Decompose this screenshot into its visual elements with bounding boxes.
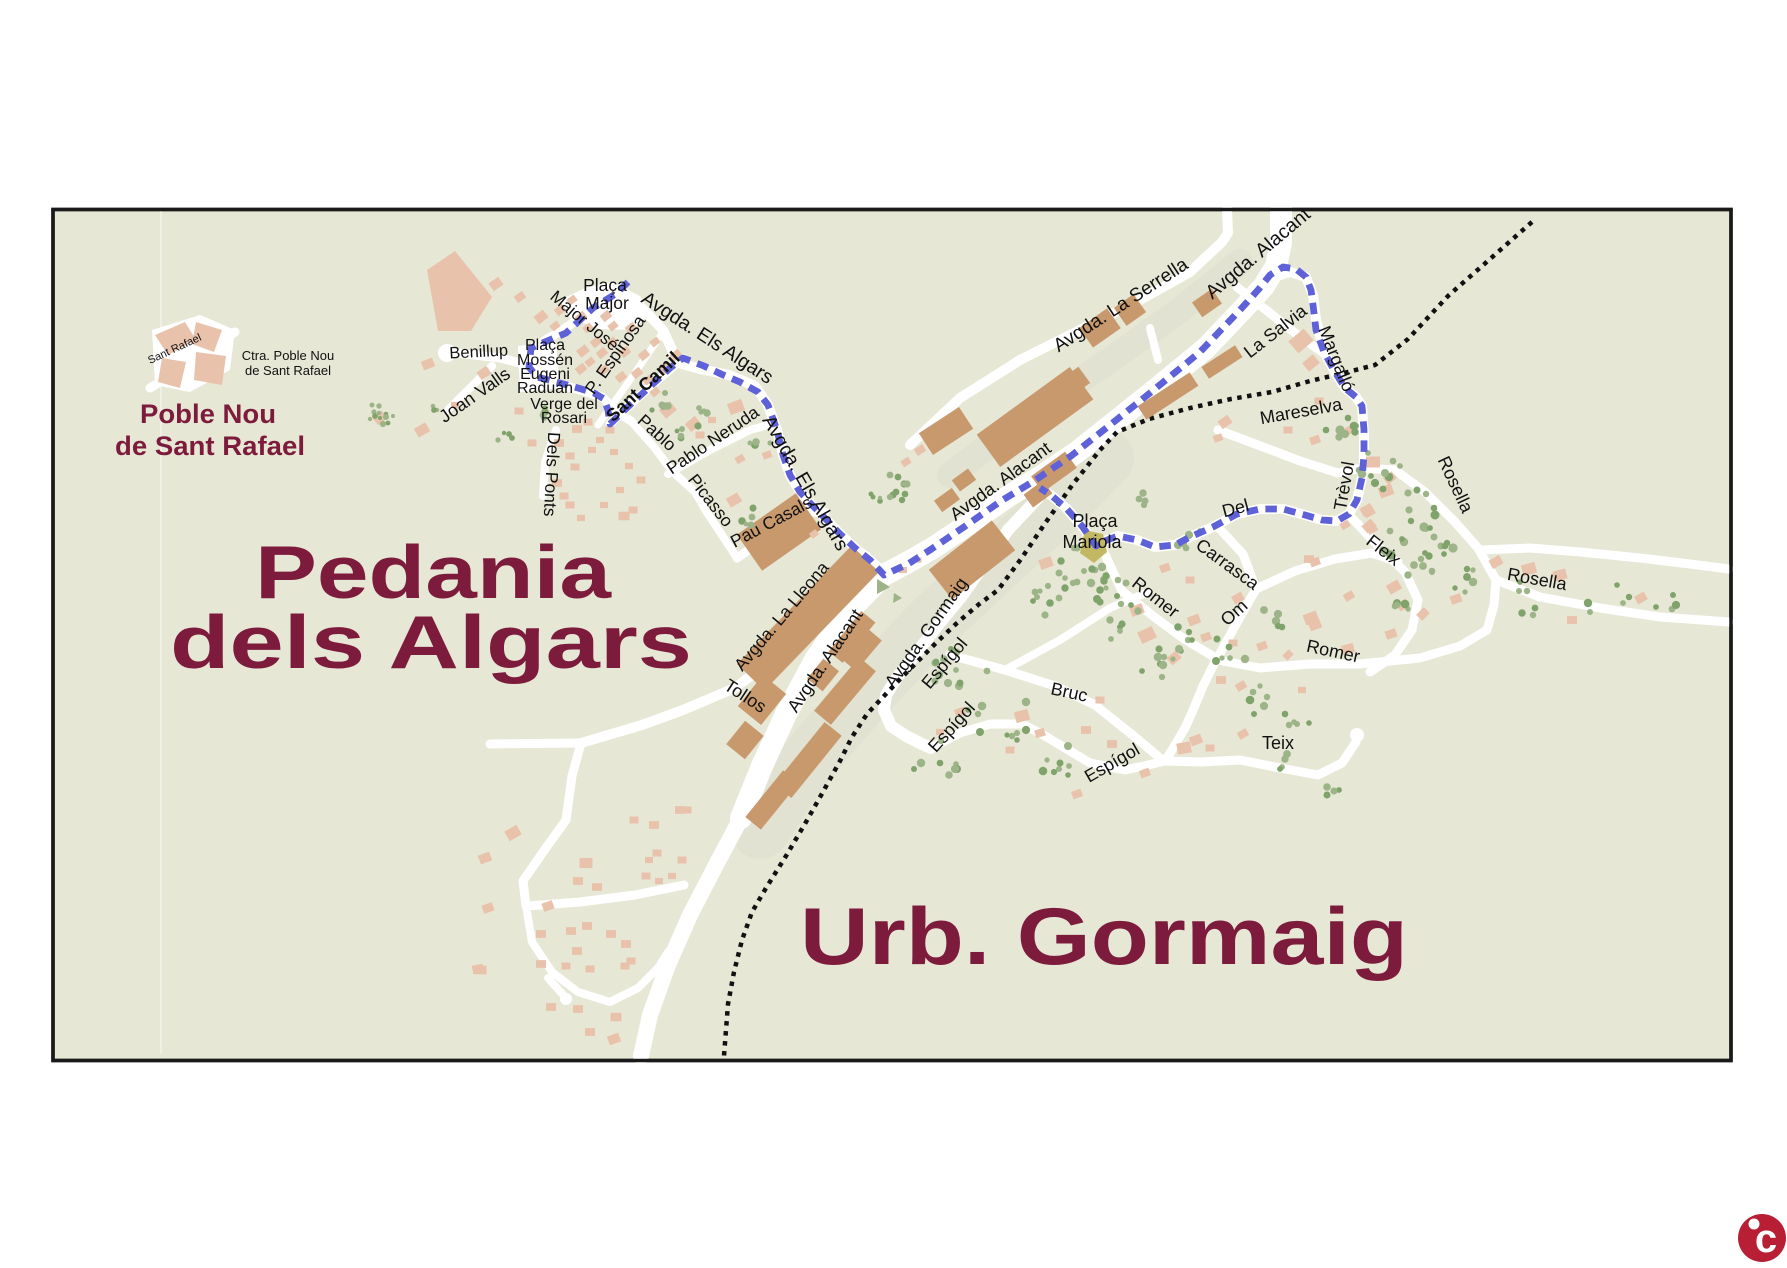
svg-text:Ctra. Poble Nou: Ctra. Poble Nou	[242, 348, 335, 363]
svg-text:de Sant Rafael: de Sant Rafael	[115, 431, 305, 461]
svg-text:de Sant Rafael: de Sant Rafael	[245, 363, 331, 378]
svg-text:Plaça: Plaça	[1072, 511, 1118, 531]
svg-text:Rosari: Rosari	[541, 410, 587, 427]
svg-text:dels Algars: dels Algars	[170, 600, 692, 684]
svg-text:Mariola: Mariola	[1062, 532, 1122, 552]
svg-text:Benillup: Benillup	[449, 341, 509, 362]
svg-text:Teix: Teix	[1262, 733, 1294, 753]
svg-text:Poble Nou: Poble Nou	[140, 399, 276, 429]
svg-text:Raduán: Raduán	[517, 380, 573, 397]
svg-text:Major: Major	[585, 293, 629, 313]
svg-text:Urb. Gormaig: Urb. Gormaig	[800, 892, 1408, 982]
svg-text:Plaça: Plaça	[583, 275, 627, 295]
